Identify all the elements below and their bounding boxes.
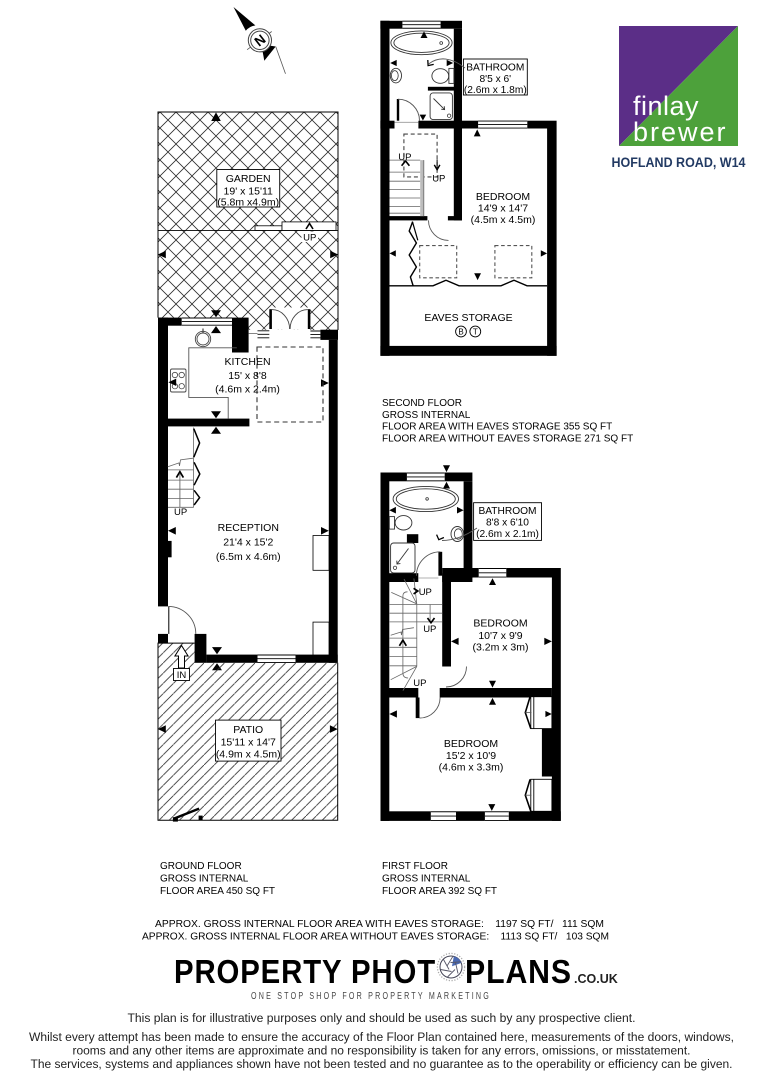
svg-text:UP: UP bbox=[432, 174, 445, 185]
svg-text:(3.2m x 3m): (3.2m x 3m) bbox=[472, 642, 528, 654]
svg-text:BATHROOM: BATHROOM bbox=[466, 63, 524, 74]
svg-text:HOFLAND ROAD, W14: HOFLAND ROAD, W14 bbox=[612, 155, 746, 170]
svg-text:15'2 x 10'9: 15'2 x 10'9 bbox=[446, 750, 496, 762]
svg-text:FIRST FLOOR: FIRST FLOOR bbox=[382, 861, 448, 872]
svg-text:(6.5m x 4.6m): (6.5m x 4.6m) bbox=[216, 551, 281, 563]
svg-text:8'5 x 6': 8'5 x 6' bbox=[479, 74, 511, 85]
svg-text:This plan is for illustrative: This plan is for illustrative purposes o… bbox=[128, 1011, 636, 1025]
svg-text:(4.5m x 4.5m): (4.5m x 4.5m) bbox=[471, 214, 536, 226]
svg-text:PROPERTY PHOT: PROPERTY PHOT bbox=[174, 954, 436, 991]
svg-text:GROSS INTERNAL: GROSS INTERNAL bbox=[382, 410, 471, 421]
svg-text:BEDROOM: BEDROOM bbox=[473, 618, 527, 630]
svg-text:SECOND FLOOR: SECOND FLOOR bbox=[382, 398, 462, 409]
svg-text:(4.6m x 3.3m): (4.6m x 3.3m) bbox=[439, 761, 504, 773]
svg-text:FLOOR AREA WITHOUT EAVES STORA: FLOOR AREA WITHOUT EAVES STORAGE 271 SQ … bbox=[382, 433, 633, 444]
svg-text:.CO.UK: .CO.UK bbox=[574, 972, 618, 986]
svg-text:B: B bbox=[458, 328, 463, 337]
svg-text:rooms and any other items are: rooms and any other items are approximat… bbox=[73, 1044, 691, 1058]
svg-text:21'4 x 15'2: 21'4 x 15'2 bbox=[223, 537, 273, 549]
svg-text:PLANS: PLANS bbox=[465, 954, 572, 991]
svg-text:GROUND FLOOR: GROUND FLOOR bbox=[160, 861, 242, 872]
svg-text:UP: UP bbox=[174, 507, 187, 518]
svg-text:UP: UP bbox=[419, 587, 432, 598]
svg-text:19' x 15'11: 19' x 15'11 bbox=[224, 186, 274, 198]
svg-text:UP: UP bbox=[303, 233, 316, 244]
svg-text:GROSS INTERNAL: GROSS INTERNAL bbox=[160, 873, 249, 884]
svg-text:GROSS INTERNAL: GROSS INTERNAL bbox=[382, 873, 471, 884]
svg-text:APPROX. GROSS INTERNAL FLOOR A: APPROX. GROSS INTERNAL FLOOR AREA WITHOU… bbox=[142, 931, 609, 942]
svg-text:EAVES STORAGE: EAVES STORAGE bbox=[424, 312, 512, 324]
svg-text:GARDEN: GARDEN bbox=[226, 173, 271, 185]
svg-text:Whilst every attempt has been: Whilst every attempt has been made to en… bbox=[29, 1030, 734, 1044]
svg-text:(4.6m x 2.4m): (4.6m x 2.4m) bbox=[215, 383, 280, 395]
svg-text:(4.9m x 4.5m): (4.9m x 4.5m) bbox=[216, 749, 281, 761]
svg-text:10'7 x 9'9: 10'7 x 9'9 bbox=[478, 630, 522, 642]
svg-text:ONE STOP SHOP FOR PROPERTY MAR: ONE STOP SHOP FOR PROPERTY MARKETING bbox=[251, 991, 491, 1002]
svg-text:FLOOR AREA 450 SQ FT: FLOOR AREA 450 SQ FT bbox=[160, 886, 275, 897]
svg-text:UP: UP bbox=[423, 624, 436, 635]
svg-text:FLOOR AREA WITH EAVES STORAGE: FLOOR AREA WITH EAVES STORAGE 355 SQ FT bbox=[382, 422, 612, 433]
svg-text:(2.6m x 2.1m): (2.6m x 2.1m) bbox=[476, 529, 539, 540]
svg-text:(5.8m x4.9m): (5.8m x4.9m) bbox=[217, 197, 279, 209]
svg-text:15'11 x 14'7: 15'11 x 14'7 bbox=[221, 737, 276, 749]
svg-text:brewer: brewer bbox=[633, 117, 728, 147]
svg-text:BATHROOM: BATHROOM bbox=[478, 506, 536, 517]
svg-text:IN: IN bbox=[177, 670, 187, 681]
svg-text:RECEPTION: RECEPTION bbox=[218, 522, 279, 534]
svg-text:15' x 8'8: 15' x 8'8 bbox=[228, 370, 267, 382]
svg-text:PATIO: PATIO bbox=[233, 724, 263, 736]
svg-text:8'8 x 6'10: 8'8 x 6'10 bbox=[486, 517, 529, 528]
svg-text:FLOOR AREA 392 SQ FT: FLOOR AREA 392 SQ FT bbox=[382, 886, 497, 897]
svg-text:T: T bbox=[473, 328, 478, 337]
svg-text:14'9 x 14'7: 14'9 x 14'7 bbox=[478, 203, 528, 215]
svg-text:APPROX. GROSS INTERNAL FLOOR A: APPROX. GROSS INTERNAL FLOOR AREA WITH E… bbox=[155, 919, 604, 930]
svg-text:The services, systems and appl: The services, systems and appliances sho… bbox=[31, 1057, 733, 1071]
svg-text:UP: UP bbox=[413, 678, 426, 689]
svg-text:(2.6m x 1.8m): (2.6m x 1.8m) bbox=[464, 85, 527, 96]
svg-text:BEDROOM: BEDROOM bbox=[444, 738, 498, 750]
svg-text:BEDROOM: BEDROOM bbox=[476, 191, 530, 203]
svg-text:KITCHEN: KITCHEN bbox=[224, 356, 270, 368]
